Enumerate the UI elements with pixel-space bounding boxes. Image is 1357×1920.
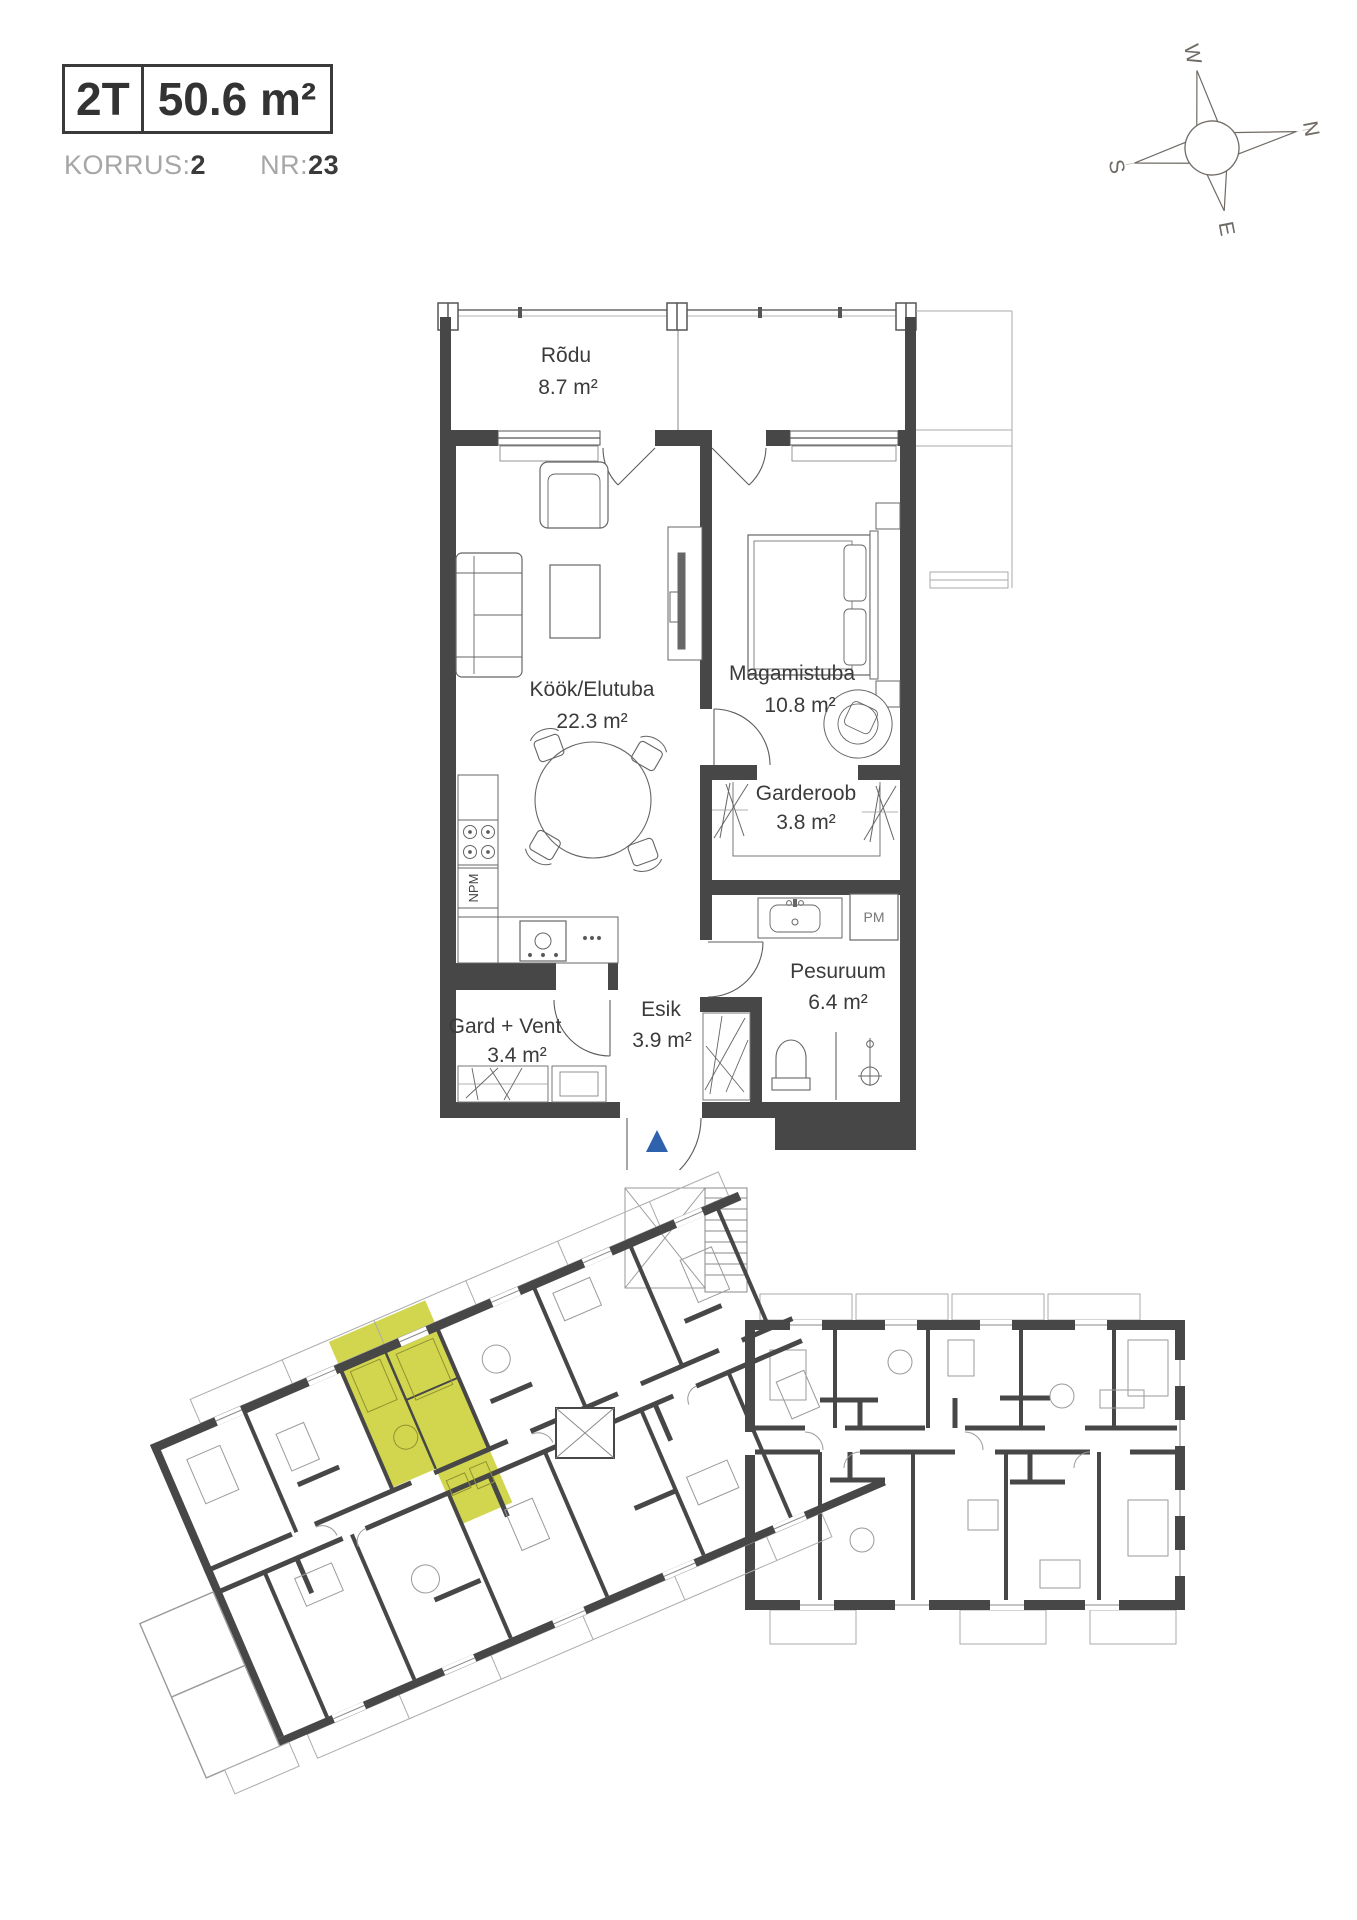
overview-left-wing — [70, 1160, 896, 1802]
living-room-window — [498, 431, 600, 461]
room-name-elutuba: Köök/Elutuba — [530, 678, 655, 701]
washing-machine: PM — [850, 894, 898, 940]
compass-e: E — [1214, 220, 1239, 238]
compass-rose-group: N E S W — [1090, 26, 1334, 256]
compass-w: W — [1179, 42, 1205, 66]
nightstand — [876, 503, 900, 529]
floor-plan-sheet: 2T 50.6 m² KORRUS:2 NR:23 N E S W — [0, 0, 1357, 1920]
compass-s: S — [1104, 158, 1129, 176]
sofa — [456, 553, 522, 677]
apartment-type-code: 2T — [65, 67, 144, 131]
room-area-rodu: 8.7 m² — [538, 376, 598, 399]
apartment-detail-plan: NPM — [420, 240, 1030, 1170]
room-name-magamistuba: Magamistuba — [729, 662, 855, 685]
overview-right-wing — [745, 1294, 1185, 1644]
compass-circle — [1180, 116, 1243, 179]
dishwasher-label: NPM — [466, 874, 481, 903]
neighbour-apartment-hint — [916, 311, 1012, 588]
junction-stairs — [556, 1408, 614, 1458]
korrus-label: KORRUS: — [64, 150, 191, 180]
room-name-esik: Esik — [641, 998, 681, 1021]
room-name-garderoob: Garderoob — [756, 782, 856, 805]
bedroom-window — [790, 431, 898, 461]
dining-table-set — [522, 725, 669, 875]
korrus-value: 2 — [191, 150, 207, 180]
floor-overview-plan — [70, 1050, 1280, 1880]
room-area-esik: 3.9 m² — [632, 1029, 692, 1052]
compass-rose-icon: N E S W — [1090, 26, 1334, 270]
room-area-elutuba: 22.3 m² — [556, 710, 627, 733]
room-name-gard-vent: Gard + Vent — [449, 1015, 562, 1038]
apartment-title-box: 2T 50.6 m² — [62, 64, 333, 134]
armchair — [540, 462, 608, 528]
room-area-pesuruum: 6.4 m² — [808, 991, 868, 1014]
coffee-table — [550, 565, 600, 638]
floor-number-line: KORRUS:2 NR:23 — [64, 150, 339, 181]
room-area-magamistuba: 10.8 m² — [764, 694, 835, 717]
washing-machine-label: PM — [864, 909, 885, 925]
room-name-rodu: Rõdu — [541, 344, 591, 367]
double-bed — [748, 531, 878, 679]
room-name-pesuruum: Pesuruum — [790, 960, 886, 983]
apartment-total-area: 50.6 m² — [144, 67, 331, 131]
compass-n: N — [1298, 119, 1323, 138]
balcony-posts — [438, 303, 916, 330]
tv-cabinet — [668, 527, 702, 660]
bathroom-sink — [758, 898, 842, 938]
nr-label: NR: — [260, 150, 308, 180]
room-area-garderoob: 3.8 m² — [776, 811, 836, 834]
nr-value: 23 — [308, 150, 339, 180]
